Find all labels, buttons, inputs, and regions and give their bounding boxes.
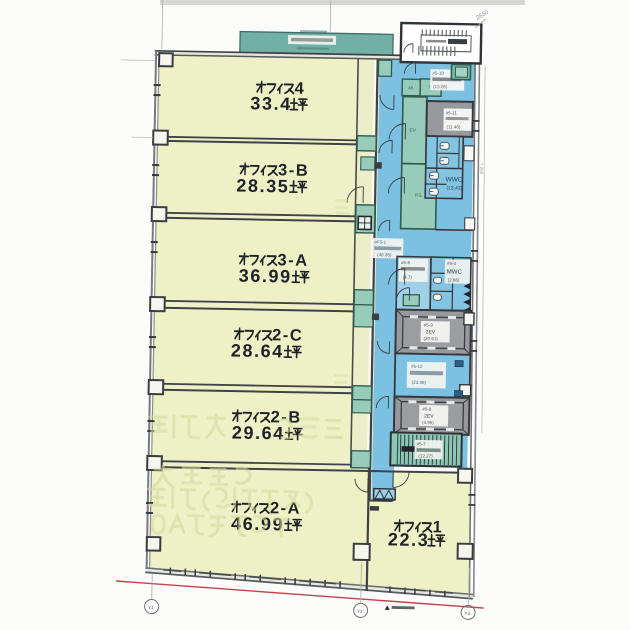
svg-text:#F5-1: #F5-1: [374, 240, 386, 245]
svg-text:28.35: 28.35: [236, 176, 289, 197]
svg-text:#5-7: #5-7: [417, 441, 427, 446]
svg-text:(12.27): (12.27): [418, 453, 433, 458]
svg-text:22.3: 22.3: [388, 529, 430, 550]
svg-text:Y2: Y2: [357, 609, 363, 614]
svg-text:(11.46): (11.46): [446, 124, 461, 129]
svg-text:(13.06): (13.06): [433, 84, 448, 89]
svg-text:(2.86): (2.86): [448, 277, 460, 282]
svg-text:(23.96): (23.96): [412, 380, 427, 385]
svg-text:(4.95): (4.95): [422, 420, 434, 425]
svg-text:2EV: 2EV: [424, 414, 434, 420]
svg-text:1: 1: [432, 518, 443, 536]
svg-text:33.4: 33.4: [250, 93, 292, 114]
svg-text:Y1: Y1: [148, 605, 154, 610]
svg-text:#5-12: #5-12: [411, 364, 423, 369]
svg-text:29.64: 29.64: [232, 422, 285, 443]
svg-text:#5-10: #5-10: [432, 71, 444, 76]
svg-text:MWC: MWC: [447, 269, 463, 275]
svg-text:#5-8: #5-8: [422, 406, 432, 411]
svg-text:2EV: 2EV: [426, 330, 436, 336]
svg-text:7,250: 7,250: [479, 163, 484, 175]
svg-text:(13.43): (13.43): [446, 185, 462, 191]
svg-text:PS: PS: [415, 193, 422, 199]
svg-text:#5-6: #5-6: [401, 260, 411, 265]
svg-text:(48.36): (48.36): [377, 252, 392, 257]
svg-text:#5-9: #5-9: [424, 322, 434, 327]
svg-text:4: 4: [294, 80, 305, 98]
svg-text:(20.61): (20.61): [424, 336, 439, 341]
svg-text:#5-11: #5-11: [446, 110, 458, 115]
svg-text:28.64: 28.64: [231, 340, 284, 361]
svg-text:(4.7): (4.7): [403, 275, 413, 280]
svg-text:WWC: WWC: [445, 176, 462, 183]
svg-text:Y3: Y3: [465, 611, 471, 616]
svg-text:EV: EV: [409, 128, 416, 134]
svg-text:#5-4: #5-4: [447, 261, 457, 266]
svg-text:4B: 4B: [408, 85, 413, 90]
svg-text:36.99: 36.99: [239, 266, 292, 287]
